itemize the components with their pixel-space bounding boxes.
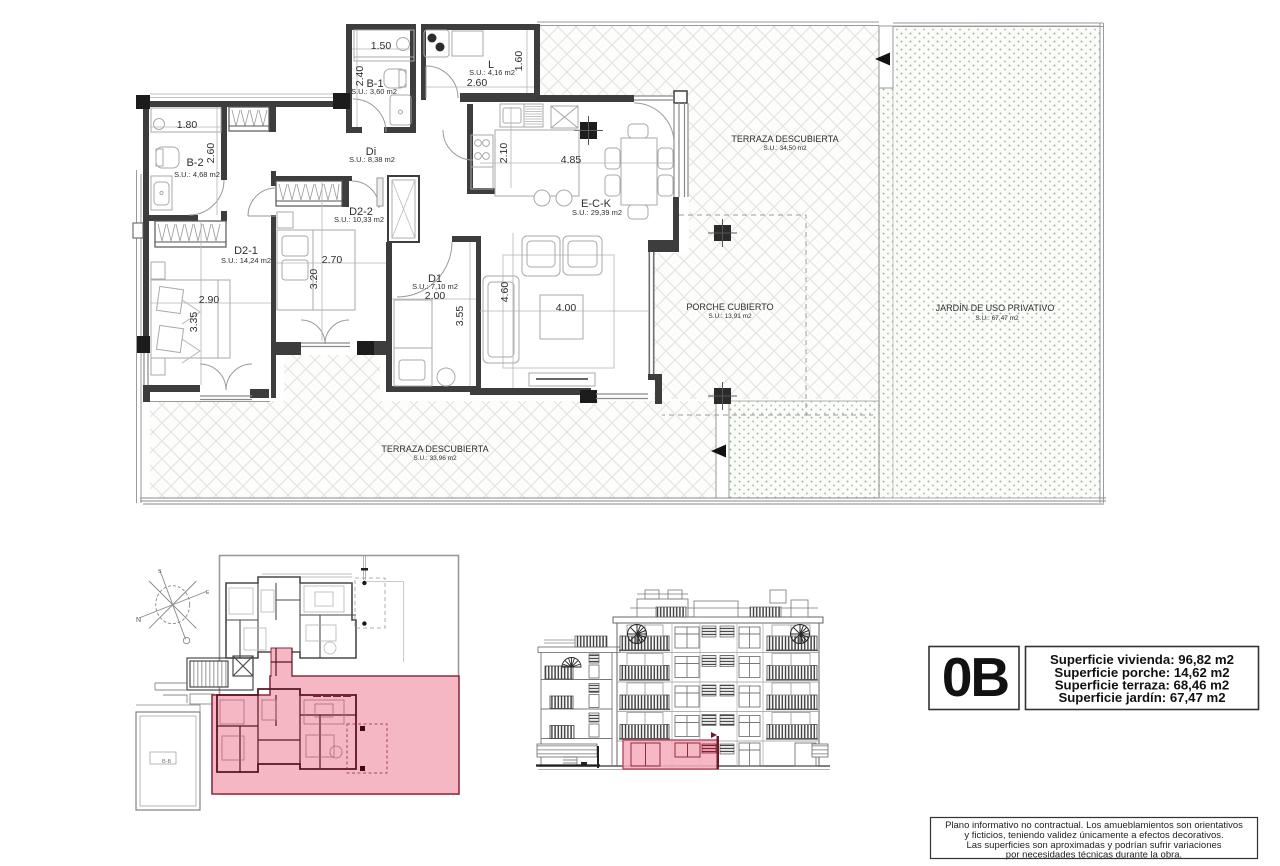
svg-text:2.00: 2.00 xyxy=(425,290,446,302)
svg-text:S.U.: 10,33 m2: S.U.: 10,33 m2 xyxy=(334,215,384,224)
svg-text:2.90: 2.90 xyxy=(199,294,220,306)
svg-text:TERRAZA DESCUBIERTA: TERRAZA DESCUBIERTA xyxy=(731,134,838,144)
svg-text:S.U.: 8,38 m2: S.U.: 8,38 m2 xyxy=(349,155,395,164)
svg-text:1.80: 1.80 xyxy=(177,119,198,131)
svg-text:B-2: B-2 xyxy=(186,157,203,169)
svg-text:2.70: 2.70 xyxy=(322,254,343,266)
svg-text:2.10: 2.10 xyxy=(498,143,510,164)
svg-text:S.U.: 29,39 m2: S.U.: 29,39 m2 xyxy=(572,208,622,217)
svg-text:S.U.: 3,60 m2: S.U.: 3,60 m2 xyxy=(351,87,397,96)
svg-text:N: N xyxy=(136,617,141,624)
svg-text:S.U.: 4,16 m2: S.U.: 4,16 m2 xyxy=(469,68,515,77)
svg-text:B-B: B-B xyxy=(162,759,172,765)
svg-text:S.U.: 14,24 m2: S.U.: 14,24 m2 xyxy=(221,256,271,265)
svg-text:2.60: 2.60 xyxy=(205,143,217,164)
svg-text:Superficie jardín: 67,47 m2: Superficie jardín: 67,47 m2 xyxy=(1058,690,1225,705)
svg-text:PORCHE CUBIERTO: PORCHE CUBIERTO xyxy=(686,302,773,312)
svg-text:S.U.: 4,68 m2: S.U.: 4,68 m2 xyxy=(174,170,220,179)
svg-text:S.U.: 7,10 m2: S.U.: 7,10 m2 xyxy=(412,282,458,291)
svg-text:TERRAZA DESCUBIERTA: TERRAZA DESCUBIERTA xyxy=(381,444,488,454)
svg-text:4.85: 4.85 xyxy=(561,154,582,166)
svg-text:S.U.: 34,50 m2: S.U.: 34,50 m2 xyxy=(763,145,807,152)
svg-text:S.U.: 67,47 m2: S.U.: 67,47 m2 xyxy=(975,315,1019,322)
svg-text:por necesidades técnicas duran: por necesidades técnicas durante la obra… xyxy=(1006,850,1182,861)
svg-text:S.U.: 13,91 m2: S.U.: 13,91 m2 xyxy=(708,313,752,320)
svg-text:3.55: 3.55 xyxy=(454,306,466,327)
svg-text:1.50: 1.50 xyxy=(371,40,392,52)
svg-text:4.00: 4.00 xyxy=(556,302,577,314)
svg-text:0B: 0B xyxy=(942,646,1009,708)
svg-text:S.U.: 33,96 m2: S.U.: 33,96 m2 xyxy=(413,455,457,462)
svg-text:JARDÍN DE USO PRIVATIVO: JARDÍN DE USO PRIVATIVO xyxy=(936,303,1055,313)
svg-text:2.60: 2.60 xyxy=(467,77,488,89)
svg-text:3.20: 3.20 xyxy=(308,269,320,290)
svg-text:4.60: 4.60 xyxy=(499,282,511,303)
svg-text:3.35: 3.35 xyxy=(188,312,200,333)
svg-text:2.40: 2.40 xyxy=(354,66,366,87)
